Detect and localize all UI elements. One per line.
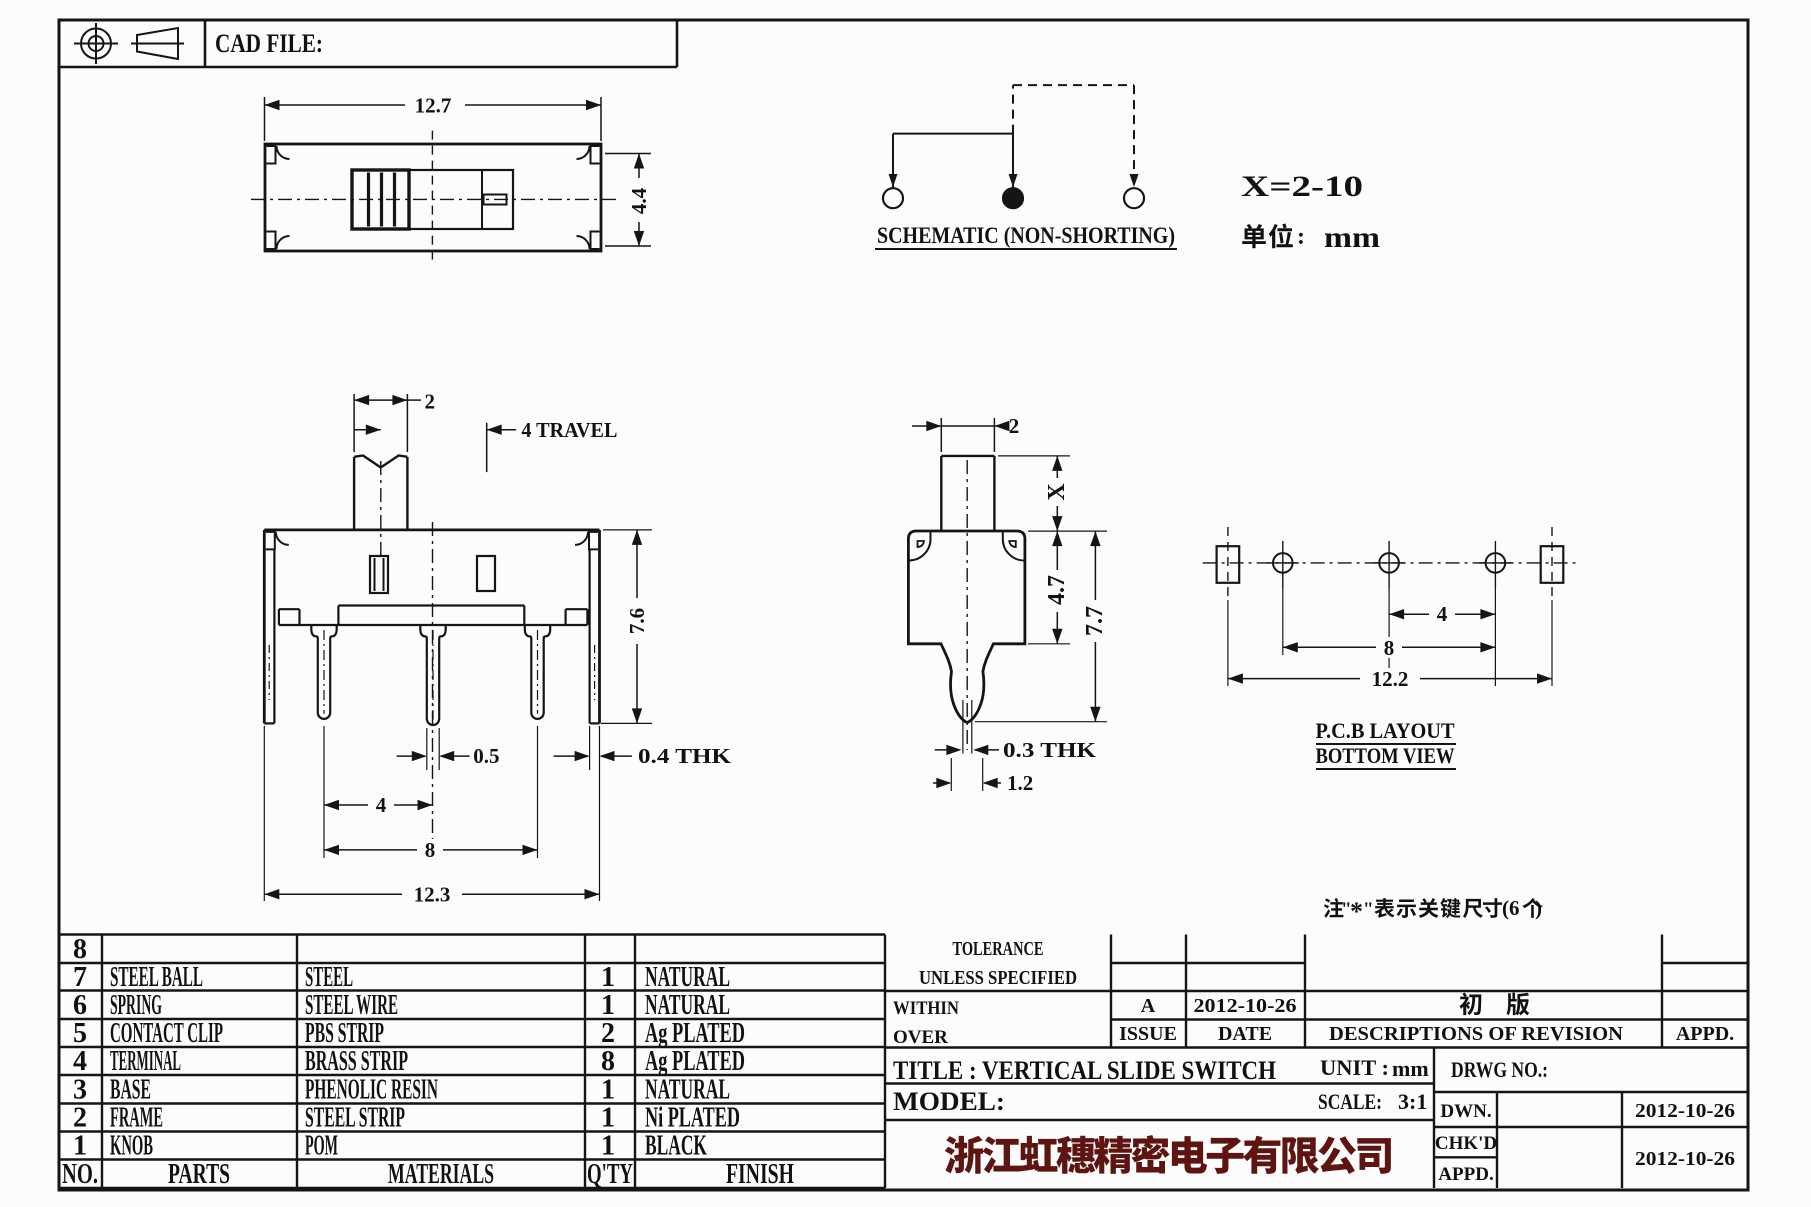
svg-text:Ag PLATED: Ag PLATED (645, 1046, 745, 1077)
svg-text:PARTS: PARTS (168, 1159, 230, 1190)
svg-text:UNIT :: UNIT : (1320, 1055, 1389, 1080)
svg-text:BRASS STRIP: BRASS STRIP (305, 1046, 408, 1077)
svg-text:1: 1 (601, 1074, 615, 1105)
svg-text:TITLE : VERTICAL SLIDE SWI: TITLE : VERTICAL SLIDE SWITCH (893, 1056, 1276, 1085)
svg-text:mm: mm (1392, 1056, 1429, 1081)
svg-text:A: A (1141, 995, 1156, 1017)
svg-text:8: 8 (425, 838, 436, 862)
svg-text:12.3: 12.3 (414, 883, 451, 907)
svg-text:8: 8 (1384, 636, 1395, 660)
svg-text:Ni PLATED: Ni PLATED (645, 1103, 740, 1134)
svg-text:POM: POM (305, 1131, 338, 1162)
svg-text:1: 1 (601, 990, 615, 1021)
svg-text:5: 5 (73, 1018, 87, 1049)
svg-text:TERMINAL: TERMINAL (110, 1046, 181, 1077)
svg-text:BASE: BASE (110, 1074, 151, 1105)
svg-text:4.7: 4.7 (1044, 575, 1070, 605)
svg-text:PHENOLIC RESIN: PHENOLIC RESIN (305, 1074, 438, 1105)
svg-text:P.C.B LAYOUT: P.C.B LAYOUT (1316, 718, 1455, 743)
svg-text:7: 7 (73, 962, 87, 993)
svg-text:2: 2 (601, 1018, 615, 1049)
svg-text:7.6: 7.6 (625, 608, 649, 634)
svg-text:CHK'D: CHK'D (1435, 1133, 1497, 1154)
svg-text:FRAME: FRAME (110, 1103, 163, 1134)
svg-text:0.3 THK: 0.3 THK (1003, 738, 1097, 762)
svg-text:2: 2 (1009, 414, 1020, 438)
svg-text::: : (1297, 224, 1305, 250)
svg-text:WITHIN: WITHIN (893, 998, 959, 1019)
svg-text:2: 2 (424, 390, 435, 414)
svg-text:1: 1 (601, 962, 615, 993)
svg-text:CAD FILE:: CAD FILE: (215, 29, 323, 58)
svg-text:2012-10-26: 2012-10-26 (1635, 1148, 1735, 1170)
svg-text:Ag PLATED: Ag PLATED (645, 1018, 745, 1049)
svg-text:SCALE:: SCALE: (1318, 1089, 1382, 1114)
svg-text:OVER: OVER (893, 1027, 948, 1048)
svg-text:3: 3 (73, 1074, 87, 1105)
svg-text:DWN.: DWN. (1440, 1101, 1491, 1122)
svg-text:MODEL:: MODEL: (893, 1087, 1005, 1116)
svg-text:TOLERANCE: TOLERANCE (953, 938, 1044, 960)
svg-text:2: 2 (73, 1103, 87, 1134)
svg-text:KNOB: KNOB (110, 1131, 153, 1162)
svg-text:8: 8 (73, 934, 87, 965)
svg-text:1: 1 (601, 1131, 615, 1162)
svg-text:X: X (1044, 483, 1070, 501)
svg-text:(6: (6 (1502, 896, 1520, 920)
svg-text:NATURAL: NATURAL (645, 990, 730, 1021)
svg-text:1: 1 (73, 1131, 87, 1162)
svg-text:STEEL STRIP: STEEL STRIP (305, 1103, 405, 1134)
svg-text:4: 4 (1437, 602, 1448, 626)
svg-text:CONTACT CLIP: CONTACT CLIP (110, 1018, 223, 1049)
svg-text:3:1: 3:1 (1398, 1089, 1427, 1114)
svg-text:4.4: 4.4 (627, 187, 651, 214)
svg-text:UNLESS SPECIFIED: UNLESS SPECIFIED (919, 967, 1077, 989)
svg-text:APPD.: APPD. (1676, 1023, 1734, 1045)
svg-text:): ) (1535, 896, 1542, 920)
svg-text:6: 6 (73, 990, 87, 1021)
svg-text:STEEL WIRE: STEEL WIRE (305, 990, 398, 1021)
svg-text:0.5: 0.5 (473, 744, 499, 768)
svg-text:1: 1 (601, 1103, 615, 1134)
svg-text:FINISH: FINISH (726, 1159, 794, 1190)
svg-text:ISSUE: ISSUE (1119, 1023, 1177, 1045)
svg-text:7.7: 7.7 (1082, 606, 1108, 636)
svg-text:2012-10-26: 2012-10-26 (1194, 995, 1297, 1017)
svg-text:12.2: 12.2 (1372, 667, 1409, 691)
svg-text:0.4 THK: 0.4 THK (638, 744, 732, 768)
svg-text:NO.: NO. (62, 1159, 98, 1190)
svg-text:4: 4 (73, 1046, 87, 1077)
svg-text:DESCRIPTIONS OF REVISION: DESCRIPTIONS OF REVISION (1329, 1023, 1624, 1045)
svg-text:STEEL: STEEL (305, 962, 353, 993)
svg-text:SPRING: SPRING (110, 990, 162, 1021)
svg-text:4 TRAVEL: 4 TRAVEL (521, 418, 617, 442)
svg-text:PBS STRIP: PBS STRIP (305, 1018, 384, 1049)
svg-text:DRWG NO.:: DRWG NO.: (1451, 1057, 1548, 1082)
svg-text:BLACK: BLACK (645, 1131, 707, 1162)
svg-text:4: 4 (376, 793, 387, 817)
svg-text:2012-10-26: 2012-10-26 (1635, 1100, 1735, 1122)
svg-text:12.7: 12.7 (415, 94, 452, 118)
svg-text:STEEL BALL: STEEL BALL (110, 962, 203, 993)
svg-text:X=2-10: X=2-10 (1241, 170, 1363, 203)
svg-text:": " (1363, 899, 1374, 920)
svg-text:NATURAL: NATURAL (645, 1074, 730, 1105)
svg-text:MATERIALS: MATERIALS (388, 1159, 494, 1190)
svg-text:BOTTOM VIEW: BOTTOM VIEW (1316, 743, 1455, 768)
svg-text:SCHEMATIC (NON-SHORTING): SCHEMATIC (NON-SHORTING) (877, 223, 1175, 248)
svg-text:DATE: DATE (1218, 1023, 1272, 1045)
svg-text:8: 8 (601, 1046, 615, 1077)
svg-text:APPD.: APPD. (1438, 1164, 1493, 1185)
svg-text:1.2: 1.2 (1007, 771, 1033, 795)
svg-text:*: * (1350, 897, 1363, 926)
svg-text:Q'TY: Q'TY (587, 1159, 633, 1190)
svg-text:mm: mm (1324, 221, 1380, 254)
svg-text:NATURAL: NATURAL (645, 962, 730, 993)
